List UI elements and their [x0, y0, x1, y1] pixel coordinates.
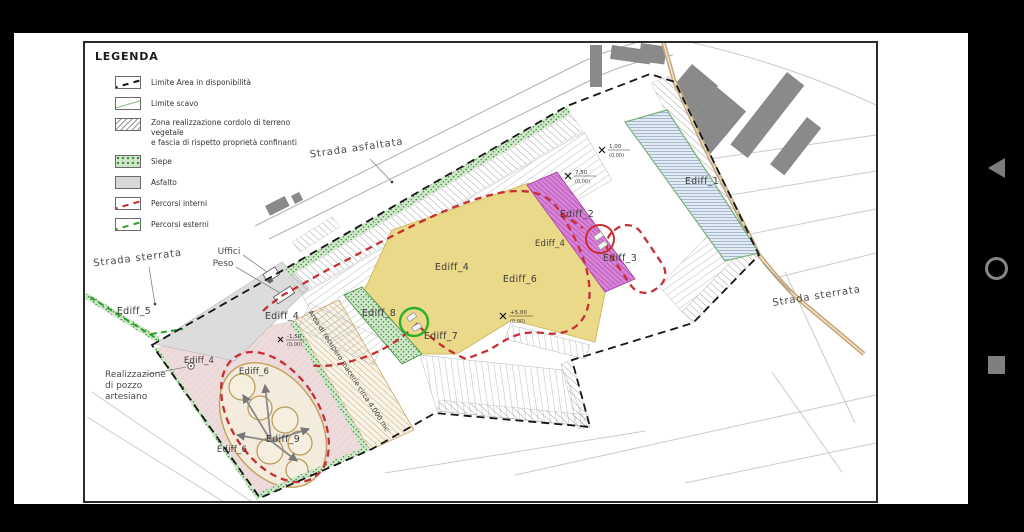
- svg-text:1,00: 1,00: [609, 144, 622, 150]
- home-icon: [985, 257, 1008, 280]
- internal-paths-swatch-icon: [115, 197, 141, 210]
- legend-item: Limite Area in disponibilità: [115, 76, 325, 89]
- ediff4-label: Ediff_4: [435, 262, 469, 273]
- asphalt-swatch-icon: [115, 176, 141, 189]
- recents-icon: [988, 356, 1005, 374]
- legend-item: Siepe: [115, 155, 325, 168]
- peso-label: Peso: [213, 259, 234, 269]
- pozzo-label: artesiano: [105, 392, 148, 402]
- pozzo-label: di pozzo: [105, 381, 143, 391]
- hedge-swatch-icon: [115, 155, 141, 168]
- svg-text:7,50: 7,50: [575, 170, 588, 176]
- dashed-boundary-swatch-icon: [115, 76, 141, 89]
- photo-viewer: LEGENDA Limite Area in disponibilità Lim…: [14, 33, 968, 504]
- legend-item: Percorsi esterni: [115, 218, 325, 231]
- back-icon: [988, 158, 1005, 178]
- hatch-zone-swatch-icon: [115, 118, 141, 131]
- ediff6-label: Ediff_6: [503, 274, 537, 285]
- leader-dot: [391, 181, 394, 184]
- leader-dot: [154, 303, 157, 306]
- svg-text:-1,50: -1,50: [287, 334, 302, 340]
- legend-item: Limite scavo: [115, 97, 325, 110]
- ediff3-label: Ediff_3: [603, 253, 637, 264]
- external-paths-swatch-icon: [115, 218, 141, 231]
- legend: LEGENDA Limite Area in disponibilità Lim…: [95, 50, 325, 239]
- ediff5-label: Ediff_5: [117, 306, 151, 317]
- ediff1-label: Ediff_1: [685, 176, 719, 187]
- recents-button[interactable]: [968, 345, 1024, 385]
- ediff9-label: Ediff_9: [266, 434, 300, 445]
- legend-title: LEGENDA: [95, 50, 325, 63]
- ediff4-label: Ediff_4: [535, 239, 565, 249]
- svg-text:(0,00): (0,00): [287, 342, 302, 348]
- ediff4-label: Ediff_4: [184, 356, 214, 366]
- home-button[interactable]: [968, 248, 1024, 288]
- svg-text:+5,00: +5,00: [510, 310, 527, 316]
- ediff7-label: Ediff_7: [424, 331, 458, 342]
- uffici-label: Uffici: [218, 247, 241, 257]
- legend-item: Percorsi interni: [115, 197, 325, 210]
- svg-text:(0,00): (0,00): [575, 179, 590, 185]
- legend-item: Asfalto: [115, 176, 325, 189]
- android-navbar: [968, 0, 1024, 532]
- ediff6-label: Ediff_6: [217, 445, 247, 455]
- back-button[interactable]: [968, 148, 1024, 188]
- excavation-limit-swatch-icon: [115, 97, 141, 110]
- svg-text:(0,00): (0,00): [510, 319, 525, 325]
- ediff2-label: Ediff_2: [560, 209, 594, 220]
- ediff4-label: Ediff_4: [265, 311, 299, 322]
- pozzo-label: Realizzazione: [105, 370, 166, 380]
- legend-item: Zona realizzazione cordolo di terreno ve…: [115, 118, 325, 147]
- ediff8-label: Ediff_8: [362, 308, 396, 319]
- svg-text:(0,00): (0,00): [609, 153, 624, 159]
- drawing-frame: LEGENDA Limite Area in disponibilità Lim…: [83, 41, 878, 503]
- ediff6-label: Ediff_6: [239, 367, 269, 377]
